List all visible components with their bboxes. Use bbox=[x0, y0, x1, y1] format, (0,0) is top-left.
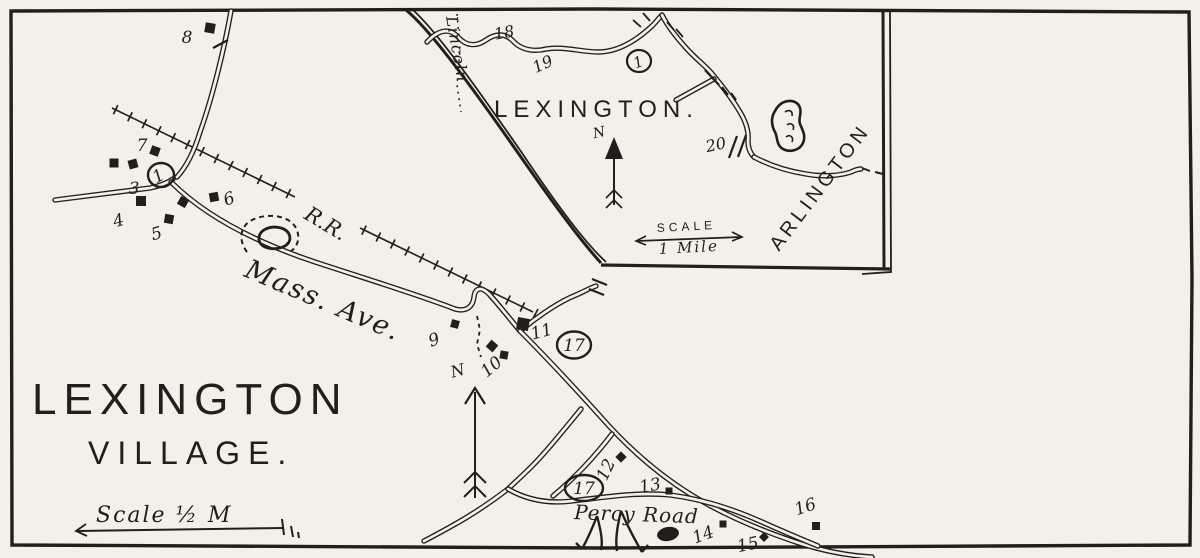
road-label-railroad: R.R. bbox=[300, 201, 352, 245]
marker-4: 4 bbox=[110, 210, 127, 232]
marker-6: 6 bbox=[221, 188, 238, 211]
pond-outline bbox=[772, 101, 804, 151]
house-marker bbox=[164, 214, 174, 224]
inset-road-exit-dashes bbox=[862, 168, 883, 174]
inset-border-bottom bbox=[601, 265, 890, 269]
main-title: LEXINGTON bbox=[32, 375, 348, 424]
lexington-village-map: N N Scale ½ M SCALE 1 Mile 1 17 17 1 8 7… bbox=[0, 0, 1200, 558]
roads-main bbox=[55, 11, 872, 557]
house-marker bbox=[499, 350, 508, 359]
railroad-segment-east bbox=[360, 228, 533, 312]
inset-border-right-outer bbox=[883, 11, 884, 270]
north-label: N bbox=[447, 359, 467, 381]
pond-squiggles bbox=[785, 111, 794, 142]
house-marker bbox=[127, 158, 138, 169]
house-marker bbox=[149, 145, 161, 157]
scale-word: SCALE bbox=[656, 218, 716, 235]
house-marker-large bbox=[656, 525, 680, 543]
house-marker bbox=[486, 340, 499, 353]
north-arrow-head bbox=[605, 137, 623, 159]
house-marker bbox=[204, 22, 216, 34]
main-subtitle: VILLAGE. bbox=[88, 435, 294, 471]
north-arrow-main: N bbox=[447, 359, 486, 498]
dashed-lane bbox=[477, 316, 481, 357]
marker-19: 19 bbox=[529, 51, 555, 77]
scale-line bbox=[77, 528, 284, 531]
house-marker bbox=[666, 488, 673, 495]
region-label-arlington: ARLINGTON bbox=[765, 120, 874, 255]
scale-distance: 1 Mile bbox=[658, 237, 719, 258]
inset-title: LEXINGTON. bbox=[494, 96, 699, 123]
marker-18: 18 bbox=[492, 21, 515, 43]
marker-20-slashes bbox=[729, 135, 746, 158]
house-marker bbox=[615, 451, 626, 462]
marker-16: 16 bbox=[792, 494, 819, 520]
marker-9: 9 bbox=[426, 329, 443, 352]
house-marker bbox=[209, 192, 219, 202]
marker-3: 3 bbox=[129, 179, 140, 199]
marker-15: 15 bbox=[735, 533, 760, 557]
marker-13: 13 bbox=[638, 474, 663, 497]
scale-right-ticks bbox=[282, 519, 299, 538]
house-marker bbox=[516, 317, 530, 331]
marker-11: 11 bbox=[529, 320, 555, 345]
circled-marker-17a: 17 bbox=[563, 336, 585, 356]
scale-bar-main: Scale ½ M bbox=[76, 503, 299, 538]
house-marker bbox=[450, 319, 460, 329]
text-labels: LEXINGTON VILLAGE. Mass. Ave. R.R. Percy… bbox=[32, 13, 875, 528]
north-label: N bbox=[591, 124, 608, 143]
house-marker bbox=[720, 521, 727, 528]
north-arrow-inset: N bbox=[591, 124, 623, 208]
house-marker bbox=[110, 159, 119, 168]
map-page: N N Scale ½ M SCALE 1 Mile 1 17 17 1 8 7… bbox=[0, 0, 1200, 558]
number-labels-main: 8 7 3 4 5 6 9 10 11 12 13 14 15 16 bbox=[110, 28, 819, 557]
marker-20: 20 bbox=[703, 133, 728, 156]
road-label-percy-road: Percy Road bbox=[573, 500, 699, 528]
circled-marker-17b: 17 bbox=[573, 479, 595, 499]
house-marker bbox=[812, 522, 820, 530]
marker-7: 7 bbox=[137, 136, 148, 156]
marker-5: 5 bbox=[149, 223, 165, 245]
scale-label: Scale ½ M bbox=[96, 503, 232, 528]
marker-8: 8 bbox=[182, 28, 193, 48]
scale-bar-inset: SCALE 1 Mile bbox=[636, 218, 742, 258]
road-label-mass-ave: Mass. Ave. bbox=[239, 254, 406, 348]
